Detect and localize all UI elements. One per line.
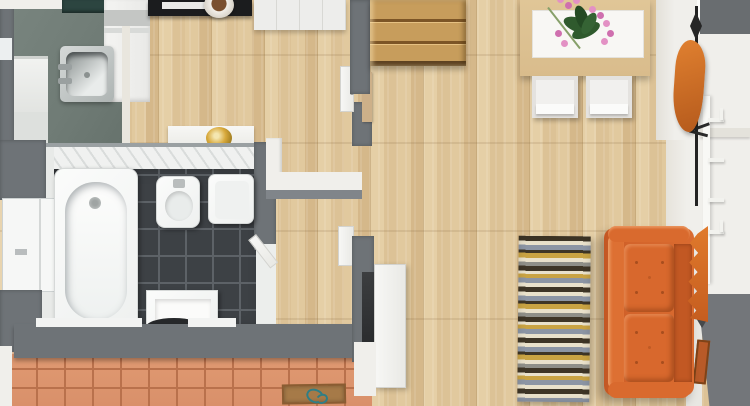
fridge-band [104,10,150,26]
chair-back [590,104,628,114]
sofa-tuft-buttons [635,331,638,334]
orchid-flower [557,0,564,3]
hall-door-strip-1 [36,318,142,327]
orchid-flower [601,38,608,45]
orchid-flower [573,0,580,4]
orchid-flower [565,2,572,9]
sofa-cushion [624,314,674,382]
sofa-tuft-buttons [635,261,638,264]
orchid-flower [607,30,614,37]
orchid-flower [561,40,568,47]
sink-faucet-icon [58,64,72,70]
chair-back [536,104,574,114]
kitchen-sink [60,46,114,102]
toilet [208,174,254,224]
window-handle-icon [15,249,27,255]
kitchen-top-wall [0,0,62,9]
chair-seat [536,80,574,106]
sofa-cushion [624,244,674,312]
chair-seat [590,80,628,106]
bathroom-top-wall-face [36,147,272,169]
staircase [370,0,466,66]
bathtub [54,168,138,332]
top-right-gray-wall [700,0,750,34]
floor-plan-canvas [0,0,750,406]
stove [148,0,252,16]
sofa-armrest-bottom [608,382,690,398]
hallway-wall-edge [266,190,362,199]
dining-chair-left [532,76,578,118]
window-divider [39,199,41,291]
orchid-flower [589,6,596,13]
dining-chair-right [586,76,632,118]
orchid-flower [603,20,610,27]
sofa [604,224,700,400]
cooktop [62,0,110,13]
sink-drain-icon [84,72,90,78]
left-wall-gray-upper [0,140,46,200]
bidet-faucet-icon [173,179,185,188]
hall-left-wall [0,346,12,406]
runner-rug [517,236,590,403]
bathroom-window [2,198,56,292]
doormat [282,383,346,404]
kitchen-window-icon [0,38,12,60]
hallway-wall-horizontal [266,172,362,192]
entry-door-open [374,264,406,388]
bathtub-faucet-icon [89,197,101,209]
orchid [545,0,625,66]
sofa-armrest-top [608,226,690,242]
bidet [156,176,200,228]
counter-edge-strip [122,26,130,148]
door-frame-piece [354,342,376,396]
sofa-backrest [608,234,624,390]
wall-hook-icon [720,108,723,120]
wall-cabinets [254,0,346,30]
wall-hook-icon [720,220,723,232]
hall-wall-band [14,324,372,358]
sofa-seat-edge [674,244,692,382]
kitchen-left-wall [0,0,14,144]
stairs-left-wall [350,0,370,94]
toilet-lid [215,181,249,219]
bidet-bowl [165,191,193,221]
hall-door-strip-2 [188,318,236,327]
orchid-flower [597,12,604,19]
orchid-flower [555,30,562,37]
wall-hook-icon [708,198,724,202]
wall-hook-icon [708,158,724,162]
dishwasher-front [14,56,48,112]
